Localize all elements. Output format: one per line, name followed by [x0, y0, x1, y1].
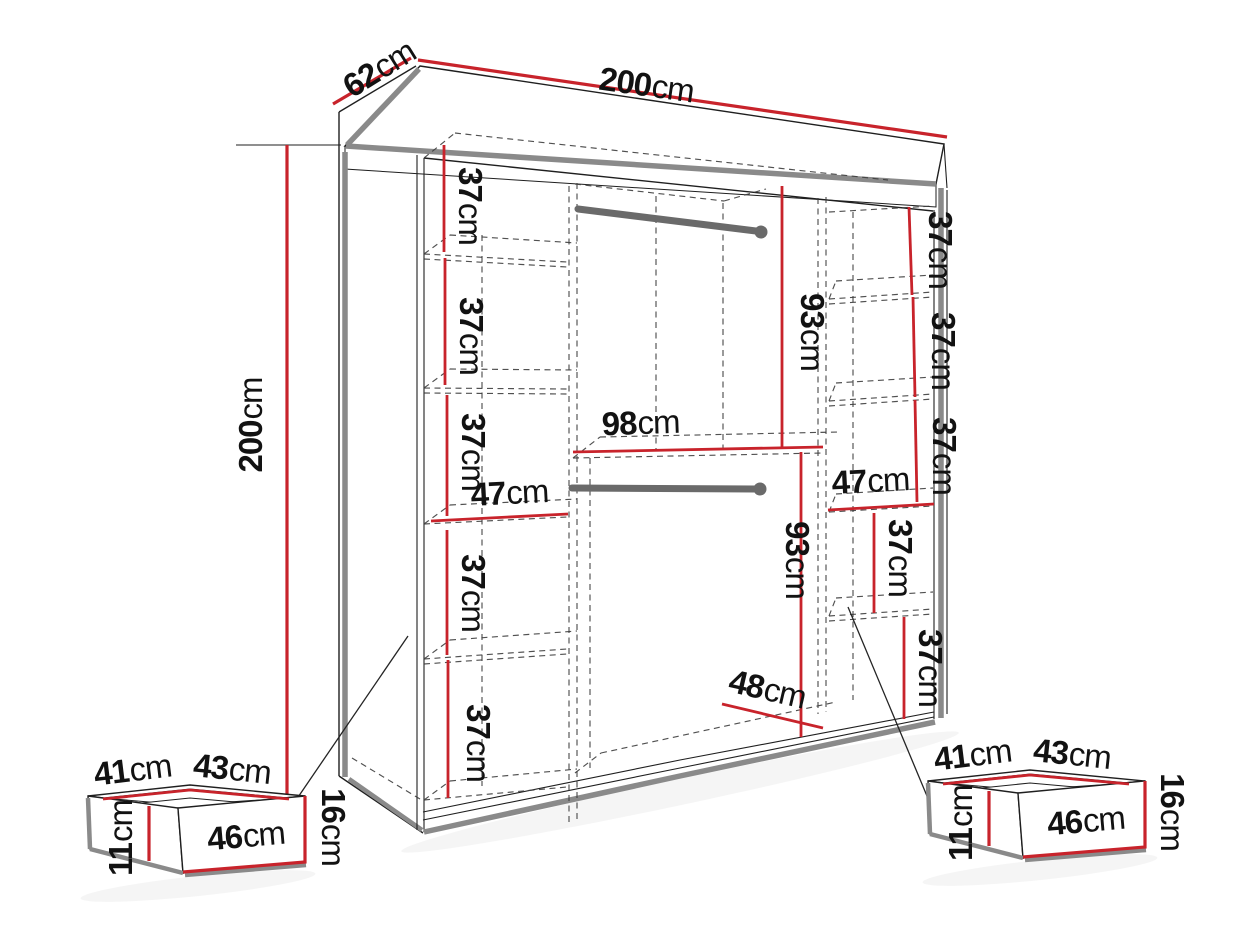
label-right-shelf-1: 37cm — [922, 211, 959, 289]
base-front-edge — [424, 722, 935, 832]
right-shelf-1 — [829, 275, 933, 304]
label-right-shelf-2: 37cm — [925, 312, 962, 390]
roof-right-end-edge — [944, 144, 947, 188]
dim-middle-width-98 — [573, 447, 823, 452]
label-middle-lower-93: 93cm — [779, 521, 816, 599]
left-bottom-depth-face — [349, 779, 422, 830]
label-middle-upper-93: 93cm — [794, 293, 831, 371]
dim-right-shelf-2 — [913, 297, 915, 397]
label-right-drawer-11: 11cm — [942, 785, 979, 861]
label-left-drawer-43: 43cm — [192, 746, 273, 791]
drawer-pointer-lines — [292, 607, 932, 808]
left-shelf-2 — [424, 369, 577, 394]
upper-rail-end-cap — [755, 226, 768, 239]
label-left-column-width-47: 47cm — [470, 472, 550, 513]
label-left-shelf-5: 37cm — [460, 704, 497, 782]
label-left-drawer-41: 41cm — [92, 746, 174, 792]
label-left-drawer-11: 11cm — [102, 800, 139, 876]
label-right-drawer-16: 16cm — [1154, 773, 1191, 851]
right-column-partition-edges — [818, 197, 853, 714]
right-shelf-2 — [829, 377, 933, 406]
wardrobe-dimension-diagram: 62cm 200cm 200cm 37cm 37cm 37cm 47cm 37c… — [0, 0, 1251, 938]
left-wall-floor-edge — [352, 758, 420, 799]
label-left-drawer-46: 46cm — [206, 814, 287, 858]
label-right-drawer-43: 43cm — [1032, 731, 1113, 776]
label-right-shelf-5: 37cm — [912, 629, 949, 707]
middle-back-corner-edges — [590, 196, 656, 768]
dim-right-shelf-3 — [915, 400, 917, 502]
label-middle-width-98: 98cm — [601, 403, 680, 443]
label-right-shelf-3: 37cm — [926, 417, 963, 495]
dim-right-shelf-1 — [909, 207, 912, 295]
lower-rail-end-cap — [754, 483, 767, 496]
label-left-shelf-4: 37cm — [455, 554, 492, 632]
label-left-shelf-2: 37cm — [453, 297, 490, 375]
right-drawer-left-edge — [928, 783, 930, 834]
lower-hanging-rail — [572, 488, 755, 489]
label-left-drawer-16: 16cm — [315, 788, 352, 866]
left-shelf-1 — [424, 235, 577, 267]
label-height-200: 200cm — [232, 377, 269, 472]
label-right-shelf-4: 37cm — [882, 519, 919, 597]
diagram-canvas: 62cm 200cm 200cm 37cm 37cm 37cm 47cm 37c… — [0, 0, 1251, 938]
left-drawer-left-edge — [88, 798, 90, 849]
label-right-column-width-47: 47cm — [831, 460, 911, 501]
upper-hanging-rail — [578, 209, 756, 231]
label-right-drawer-46: 46cm — [1046, 799, 1127, 843]
label-left-shelf-1: 37cm — [452, 167, 489, 245]
